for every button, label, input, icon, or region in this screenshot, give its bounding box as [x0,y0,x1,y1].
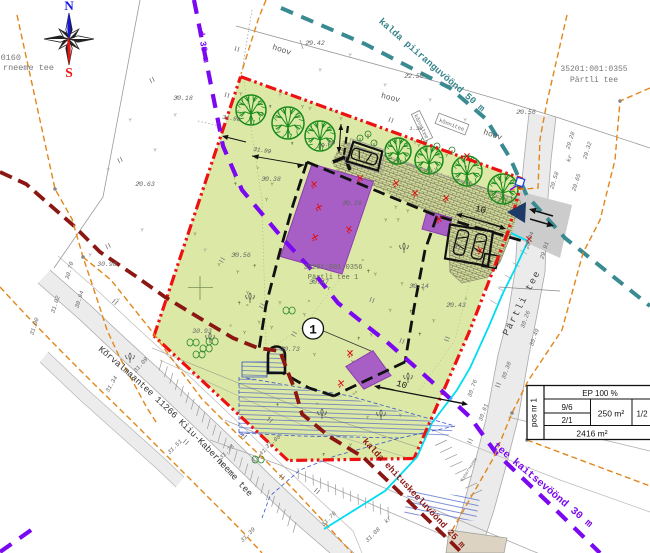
svg-text:29.42: 29.42 [305,40,325,47]
svg-text:1/2: 1/2 [636,410,648,419]
svg-text:20.56: 20.56 [516,109,536,116]
svg-text:30.14: 30.14 [409,283,429,290]
svg-text:30.93: 30.93 [192,328,212,335]
svg-text:30.18: 30.18 [173,95,193,102]
svg-text:Pärtli tee: Pärtli tee [570,76,618,85]
svg-text:20.73: 20.73 [280,346,300,353]
svg-text:35201:001:0355: 35201:001:0355 [560,65,627,74]
svg-text:Pärtli tee 1: Pärtli tee 1 [308,274,358,282]
svg-text:22.50: 22.50 [404,73,424,80]
svg-text:pos nr 1: pos nr 1 [530,397,539,426]
svg-text:2/1: 2/1 [561,416,573,425]
svg-text:30.98: 30.98 [97,261,117,268]
svg-text:2416 m²: 2416 m² [576,429,607,439]
svg-text:N: N [64,0,74,13]
svg-text:9/6: 9/6 [561,403,573,412]
svg-text:20.43: 20.43 [446,302,466,309]
svg-text:R: R [488,260,491,266]
svg-text:35201:001:0356: 35201:001:0356 [304,264,363,272]
svg-text:250 m²: 250 m² [598,409,625,419]
svg-text:30.38: 30.38 [261,176,281,183]
svg-text:20.63: 20.63 [135,181,155,188]
svg-text:S: S [65,65,73,80]
svg-text:35201:001:0160: 35201:001:0160 [0,53,21,63]
svg-text:1.30: 1.30 [409,125,423,132]
svg-text:EP 100 %: EP 100 % [582,389,617,398]
svg-text:30.26: 30.26 [342,200,362,207]
svg-text:30.56: 30.56 [231,252,251,259]
svg-text:rneeme tee: rneeme tee [3,63,54,73]
svg-text:1: 1 [309,323,317,338]
